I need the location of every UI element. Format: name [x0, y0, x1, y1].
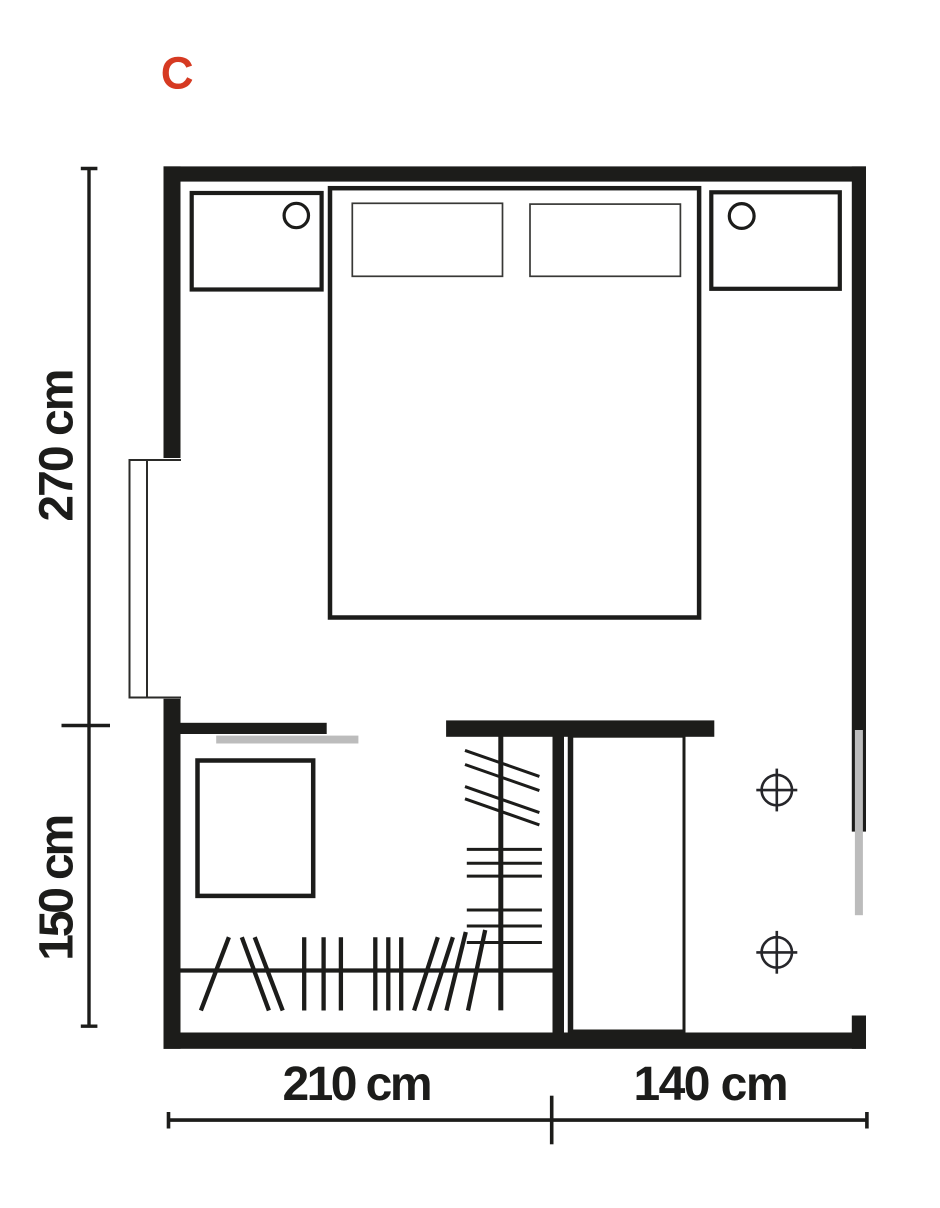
- svg-text:210 cm: 210 cm: [283, 1058, 433, 1111]
- svg-text:C: C: [162, 49, 193, 97]
- svg-text:150 cm: 150 cm: [31, 814, 84, 961]
- svg-text:270 cm: 270 cm: [30, 369, 83, 522]
- svg-text:140 cm: 140 cm: [634, 1058, 789, 1111]
